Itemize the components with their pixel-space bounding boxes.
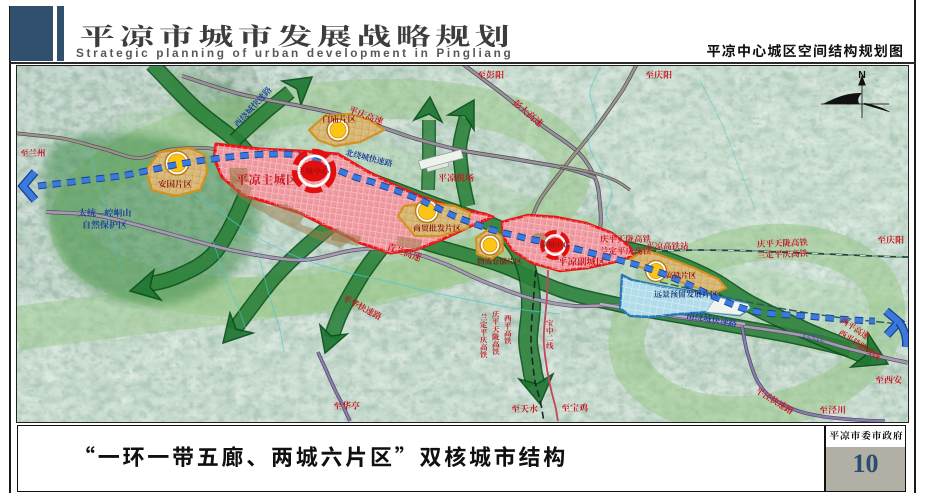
svg-text:N: N xyxy=(858,69,866,81)
